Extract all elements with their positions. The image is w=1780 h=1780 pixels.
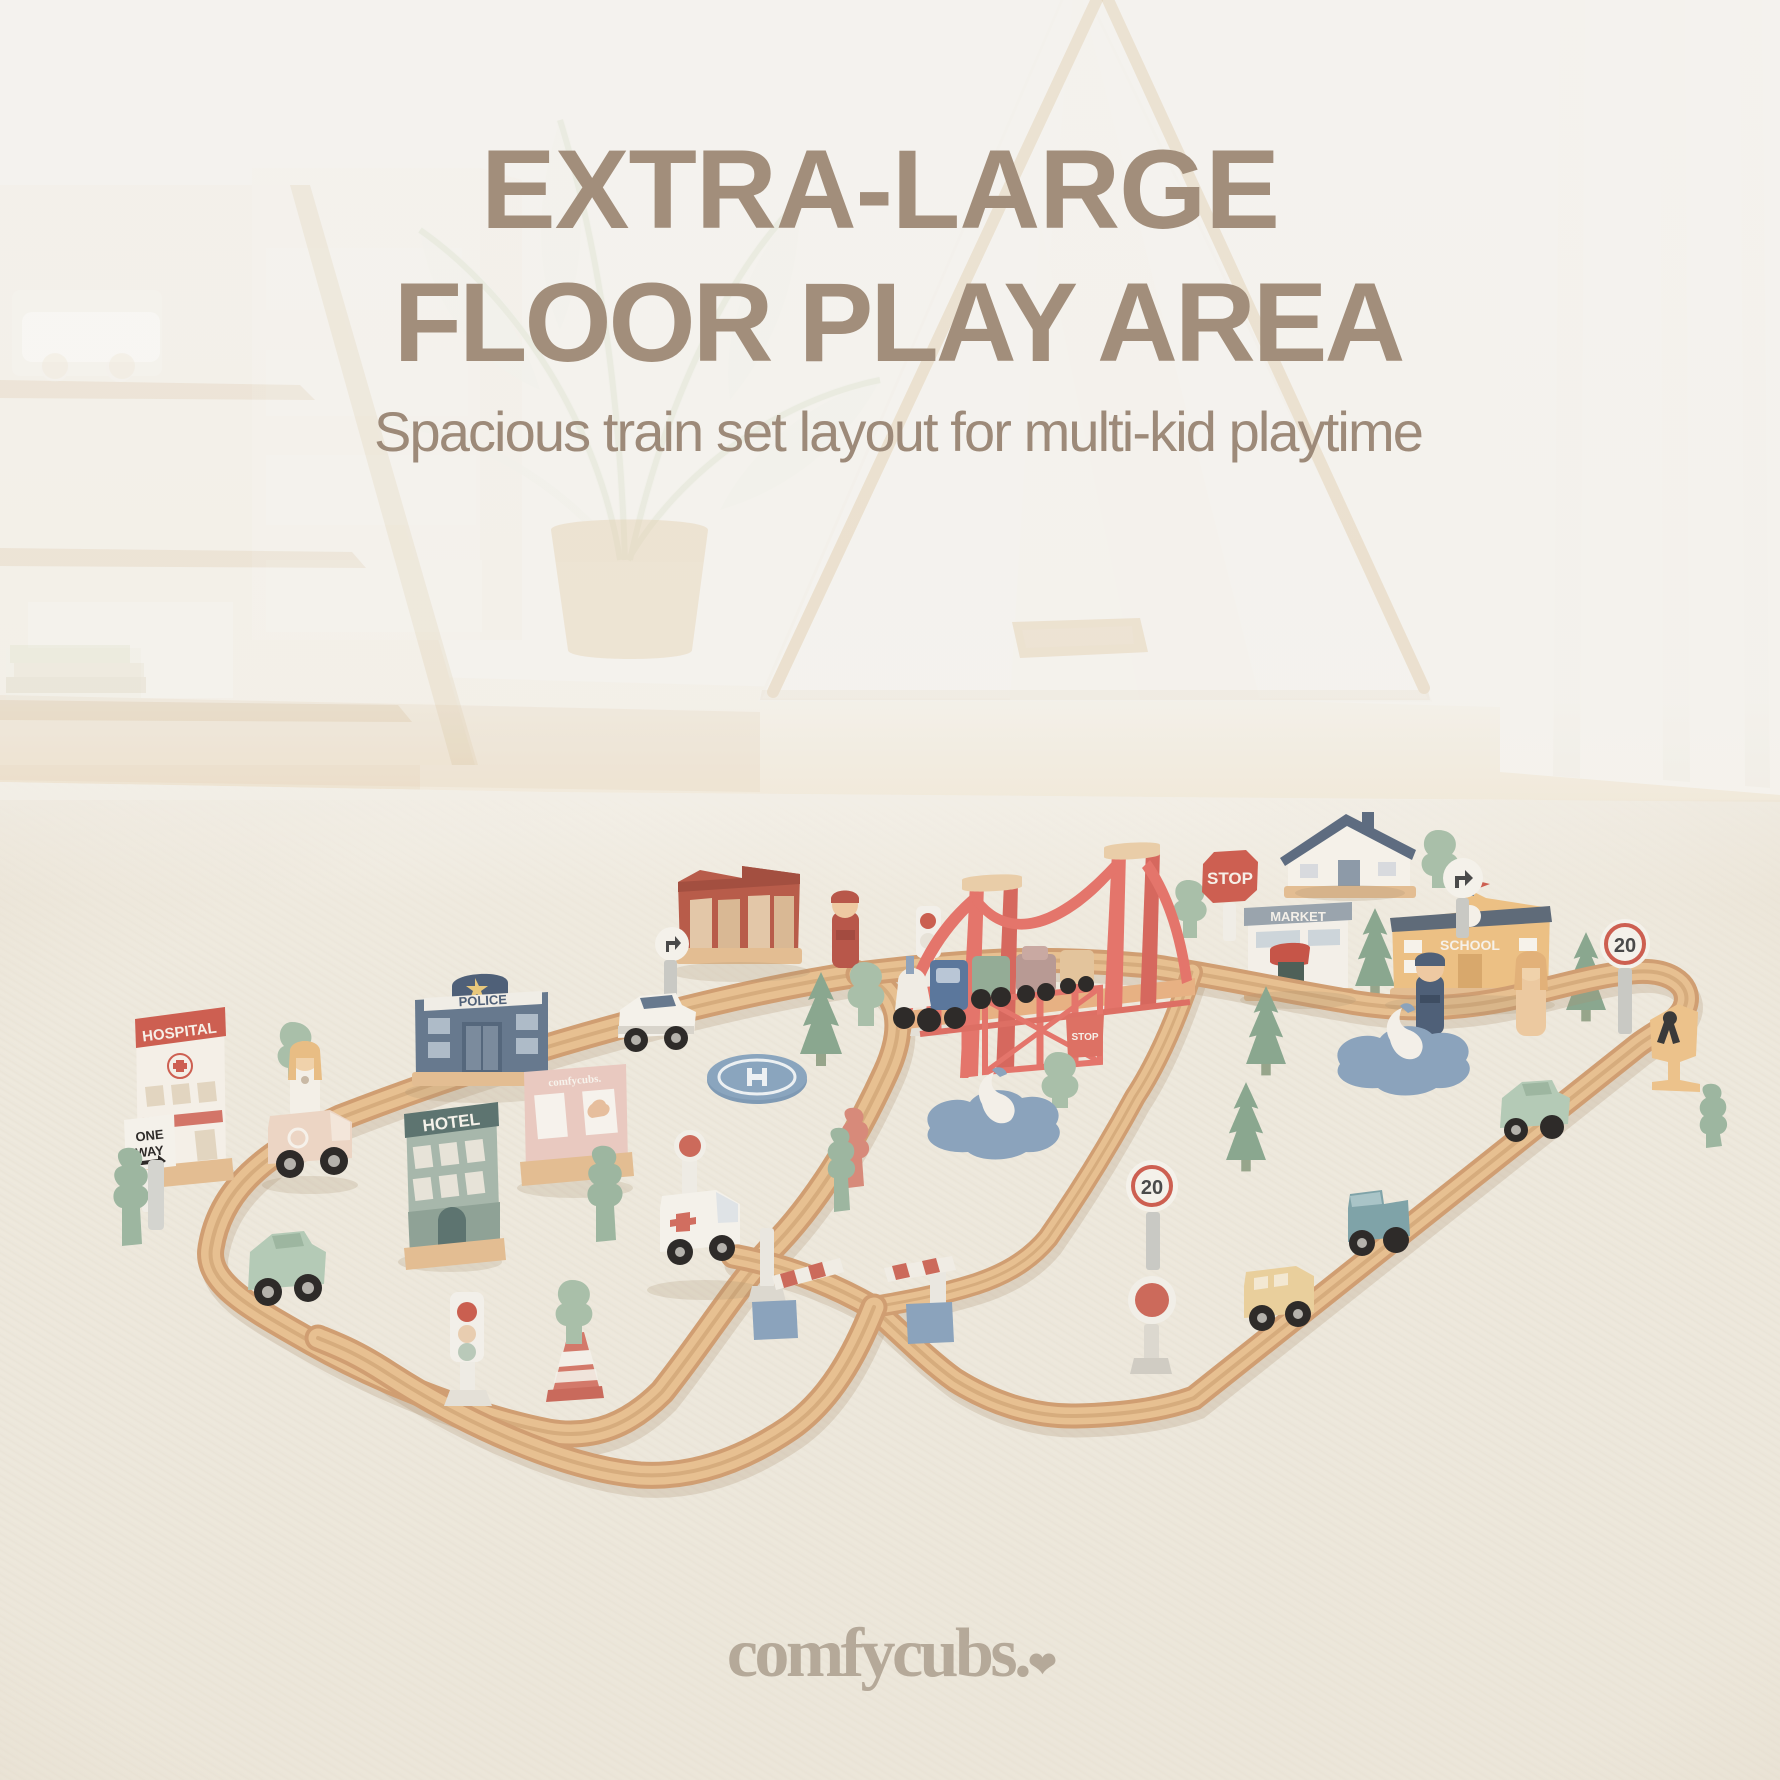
svg-text:STOP: STOP (1207, 869, 1253, 888)
svg-text:MARKET: MARKET (1270, 909, 1326, 924)
svg-text:ONE: ONE (135, 1127, 165, 1145)
svg-text:SCHOOL: SCHOOL (1440, 937, 1500, 953)
svg-text:20: 20 (1141, 1177, 1163, 1199)
svg-text:20: 20 (1614, 935, 1636, 957)
svg-text:POLICE: POLICE (458, 992, 507, 1010)
svg-text:STOP: STOP (1071, 1032, 1098, 1043)
